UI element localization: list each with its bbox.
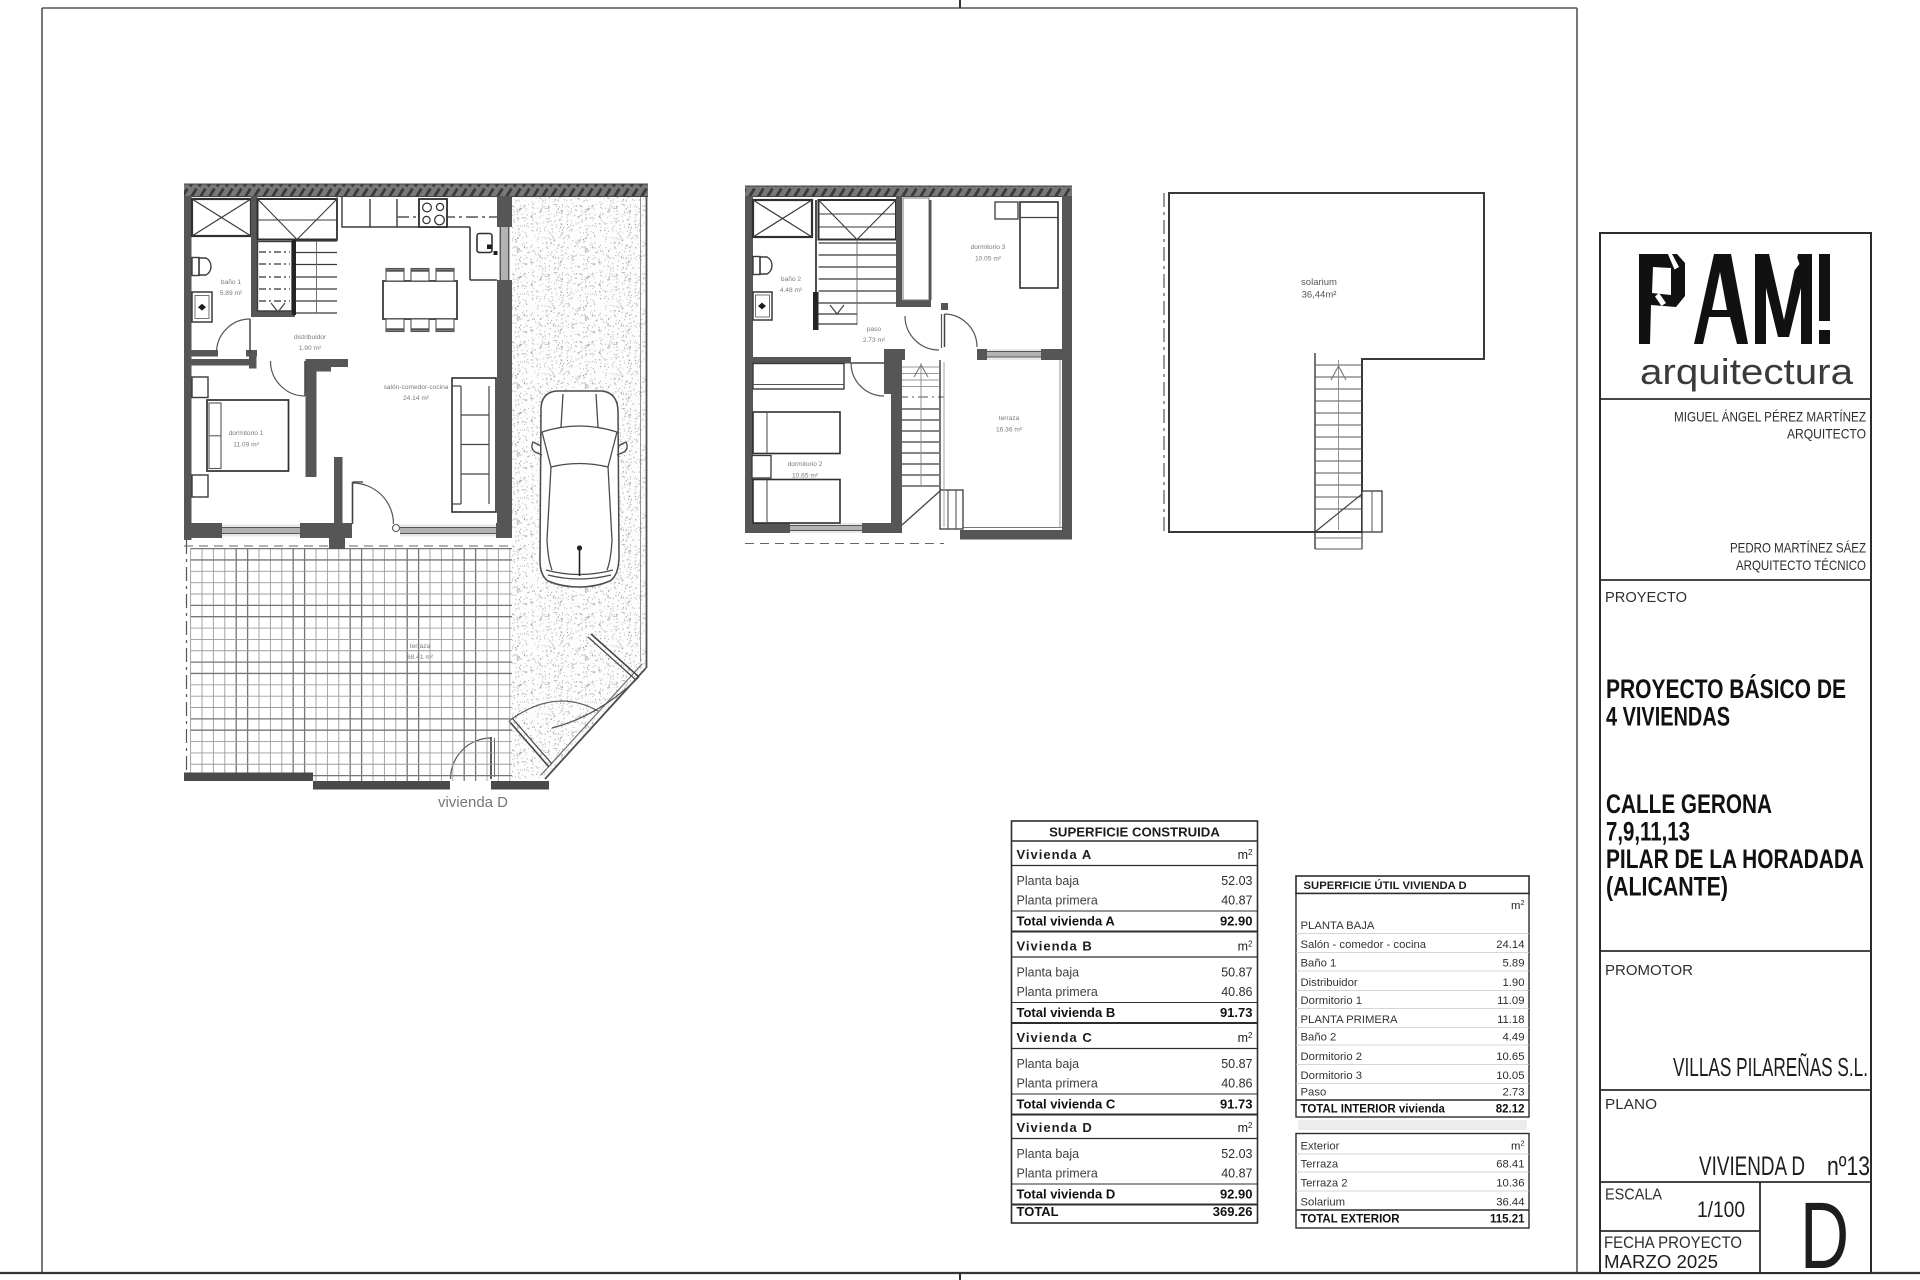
svg-text:4.49: 4.49 — [1503, 1032, 1525, 1044]
svg-text:Solarium: Solarium — [1301, 1197, 1346, 1209]
svg-text:7,9,11,13: 7,9,11,13 — [1606, 817, 1690, 847]
svg-text:terraza: terraza — [999, 415, 1020, 422]
svg-text:FECHA PROYECTO: FECHA PROYECTO — [1604, 1233, 1742, 1252]
svg-text:Planta primera: Planta primera — [1017, 1167, 1098, 1181]
svg-text:Vivienda C: Vivienda C — [1017, 1030, 1093, 1045]
svg-text:arquitectura: arquitectura — [1640, 351, 1854, 392]
svg-text:2.73: 2.73 — [1503, 1087, 1525, 1099]
svg-text:dormitorio 1: dormitorio 1 — [229, 430, 264, 437]
svg-text:Terraza 2: Terraza 2 — [1301, 1178, 1348, 1190]
svg-text:Distribuidor: Distribuidor — [1301, 977, 1358, 989]
svg-text:1.90: 1.90 — [1503, 977, 1525, 989]
svg-text:Dormitorio 3: Dormitorio 3 — [1301, 1070, 1363, 1082]
svg-text:PLANO: PLANO — [1605, 1096, 1657, 1113]
svg-text:4.48 m²: 4.48 m² — [780, 287, 803, 294]
svg-text:Paso: Paso — [1301, 1087, 1327, 1099]
svg-text:10.65: 10.65 — [1496, 1051, 1524, 1063]
svg-text:paso: paso — [867, 326, 882, 333]
svg-text:11.09 m²: 11.09 m² — [233, 442, 259, 449]
svg-text:5.89 m²: 5.89 m² — [220, 290, 243, 297]
svg-text:vivienda D: vivienda D — [438, 794, 508, 811]
svg-text:24.14 m²: 24.14 m² — [403, 395, 430, 402]
svg-text:Dormitorio 1: Dormitorio 1 — [1301, 995, 1363, 1007]
svg-text:40.87: 40.87 — [1221, 1167, 1252, 1181]
svg-text:91.73: 91.73 — [1220, 1005, 1253, 1020]
svg-text:dormitorio 3: dormitorio 3 — [971, 244, 1006, 251]
svg-text:40.86: 40.86 — [1221, 1077, 1252, 1091]
svg-text:VIVIENDA D: VIVIENDA D — [1699, 1151, 1805, 1181]
svg-text:ARQUITECTO: ARQUITECTO — [1787, 426, 1866, 442]
svg-text:115.21: 115.21 — [1490, 1214, 1525, 1226]
svg-text:1.90 m²: 1.90 m² — [299, 345, 322, 352]
svg-text:50.87: 50.87 — [1221, 1057, 1252, 1071]
svg-text:92.90: 92.90 — [1220, 1187, 1253, 1202]
svg-text:52.03: 52.03 — [1221, 1147, 1252, 1161]
svg-text:Planta baja: Planta baja — [1017, 966, 1080, 980]
svg-text:Dormitorio 2: Dormitorio 2 — [1301, 1051, 1363, 1063]
svg-text:TOTAL EXTERIOR: TOTAL EXTERIOR — [1301, 1214, 1401, 1226]
svg-text:Planta baja: Planta baja — [1017, 1147, 1080, 1161]
svg-text:16.36 m²: 16.36 m² — [996, 427, 1023, 434]
svg-text:CALLE GERONA: CALLE GERONA — [1606, 789, 1772, 819]
svg-text:Total vivienda B: Total vivienda B — [1017, 1005, 1116, 1020]
svg-text:PROYECTO BÁSICO DE: PROYECTO BÁSICO DE — [1606, 673, 1846, 704]
svg-text:baño 2: baño 2 — [781, 276, 802, 283]
svg-text:MARZO 2025: MARZO 2025 — [1604, 1252, 1718, 1272]
svg-text:SUPERFICIE CONSTRUIDA: SUPERFICIE CONSTRUIDA — [1049, 825, 1220, 840]
svg-text:PLANTA PRIMERA: PLANTA PRIMERA — [1301, 1014, 1399, 1026]
svg-text:4 VIVIENDAS: 4 VIVIENDAS — [1606, 702, 1730, 732]
svg-text:10.05: 10.05 — [1496, 1070, 1524, 1082]
svg-text:91.73: 91.73 — [1220, 1097, 1253, 1112]
svg-text:1/100: 1/100 — [1697, 1197, 1745, 1222]
svg-text:Total vivienda A: Total vivienda A — [1017, 914, 1116, 929]
svg-text:distribuidor: distribuidor — [294, 334, 327, 341]
svg-text:ARQUITECTO TÉCNICO: ARQUITECTO TÉCNICO — [1736, 557, 1866, 573]
svg-text:10.05 m²: 10.05 m² — [975, 256, 1002, 263]
svg-text:Planta primera: Planta primera — [1017, 1077, 1098, 1091]
svg-text:TOTAL INTERIOR vivienda: TOTAL INTERIOR vivienda — [1301, 1104, 1446, 1116]
svg-text:Planta baja: Planta baja — [1017, 1057, 1080, 1071]
svg-text:VILLAS PILAREÑAS S.L.: VILLAS PILAREÑAS S.L. — [1673, 1052, 1868, 1082]
svg-text:40.86: 40.86 — [1221, 985, 1252, 999]
svg-text:Exterior: Exterior — [1301, 1141, 1340, 1153]
svg-text:68.41: 68.41 — [1496, 1159, 1524, 1171]
svg-text:PEDRO MARTÍNEZ SÁEZ: PEDRO MARTÍNEZ SÁEZ — [1730, 540, 1866, 556]
svg-text:36.44: 36.44 — [1496, 1197, 1524, 1209]
svg-text:52.03: 52.03 — [1221, 874, 1252, 888]
svg-text:PLANTA BAJA: PLANTA BAJA — [1301, 920, 1375, 932]
svg-text:PROMOTOR: PROMOTOR — [1605, 962, 1693, 979]
svg-text:(ALICANTE): (ALICANTE) — [1606, 872, 1728, 902]
svg-text:24.14: 24.14 — [1496, 939, 1524, 951]
svg-text:dormitorio 2: dormitorio 2 — [788, 461, 823, 468]
svg-text:36,44m²: 36,44m² — [1302, 290, 1337, 301]
svg-text:PILAR DE LA HORADADA: PILAR DE LA HORADADA — [1606, 844, 1864, 874]
svg-text:nº13: nº13 — [1827, 1151, 1870, 1181]
svg-text:68.41 m²: 68.41 m² — [407, 654, 434, 661]
svg-text:Total vivienda D: Total vivienda D — [1017, 1187, 1116, 1202]
svg-text:Baño 2: Baño 2 — [1301, 1032, 1337, 1044]
svg-text:10.65 m²: 10.65 m² — [792, 473, 819, 480]
svg-text:baño 1: baño 1 — [221, 279, 242, 286]
svg-text:solarium: solarium — [1301, 277, 1337, 288]
svg-text:terraza: terraza — [410, 643, 431, 650]
svg-text:Terraza: Terraza — [1301, 1159, 1339, 1171]
svg-text:ESCALA: ESCALA — [1605, 1187, 1663, 1204]
svg-text:Planta primera: Planta primera — [1017, 894, 1098, 908]
svg-text:Planta primera: Planta primera — [1017, 985, 1098, 999]
svg-text:PROYECTO: PROYECTO — [1605, 589, 1687, 606]
svg-text:Vivienda A: Vivienda A — [1017, 847, 1093, 862]
svg-text:TOTAL: TOTAL — [1017, 1204, 1059, 1219]
svg-text:Salón - comedor - cocina: Salón - comedor - cocina — [1301, 939, 1427, 951]
svg-text:MIGUEL ÁNGEL PÉREZ MARTÍNEZ: MIGUEL ÁNGEL PÉREZ MARTÍNEZ — [1674, 409, 1866, 425]
svg-text:D: D — [1800, 1183, 1849, 1280]
svg-text:369.26: 369.26 — [1213, 1204, 1253, 1219]
svg-text:11.18: 11.18 — [1497, 1014, 1524, 1026]
svg-text:82.12: 82.12 — [1496, 1104, 1525, 1116]
svg-text:Vivienda B: Vivienda B — [1017, 939, 1093, 954]
svg-text:Total vivienda C: Total vivienda C — [1017, 1097, 1116, 1112]
svg-text:SUPERFICIE ÚTIL VIVIENDA D: SUPERFICIE ÚTIL VIVIENDA D — [1304, 879, 1467, 892]
svg-text:2.73 m²: 2.73 m² — [863, 337, 886, 344]
svg-text:92.90: 92.90 — [1220, 914, 1253, 929]
svg-text:Planta baja: Planta baja — [1017, 874, 1080, 888]
svg-text:Baño 1: Baño 1 — [1301, 958, 1337, 970]
svg-text:11.09: 11.09 — [1497, 995, 1524, 1007]
svg-text:salón-comedor-cocina: salón-comedor-cocina — [384, 384, 449, 391]
svg-text:10.36: 10.36 — [1496, 1178, 1524, 1190]
svg-text:50.87: 50.87 — [1221, 966, 1252, 980]
svg-text:Vivienda D: Vivienda D — [1017, 1120, 1093, 1135]
svg-text:40.87: 40.87 — [1221, 894, 1252, 908]
svg-text:5.89: 5.89 — [1503, 958, 1525, 970]
